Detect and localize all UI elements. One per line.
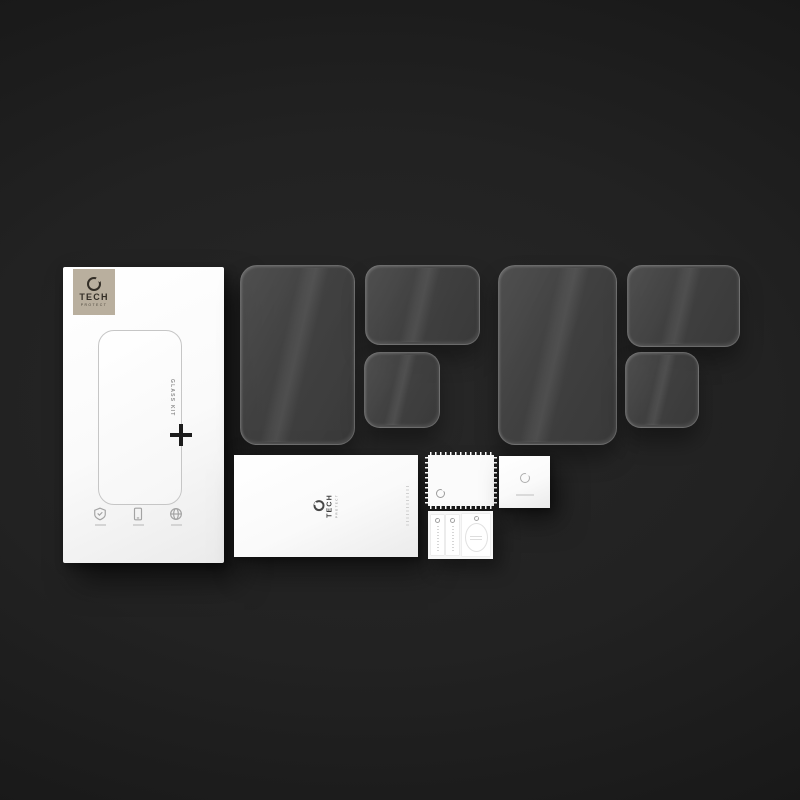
envelope-brand-logo: TECH PROTECT <box>314 494 339 518</box>
sticker-text-line <box>470 539 482 540</box>
brand-subname: PROTECT <box>81 304 108 308</box>
micro-label-bar <box>516 494 534 496</box>
smartphone-icon <box>131 507 145 521</box>
glass-panel-small-right <box>625 352 699 428</box>
broken-ring-logo-icon <box>87 277 101 291</box>
icon-label-bar <box>95 524 106 526</box>
product-photo-scene: TECH PROTECT GLASS KIT <box>0 0 800 800</box>
broken-ring-logo-icon <box>474 516 479 521</box>
globe-icon <box>169 507 183 521</box>
broken-ring-logo-icon <box>314 501 325 512</box>
wipe-and-sticker-kit <box>428 511 493 559</box>
sticker-oval <box>465 523 488 552</box>
dust-removal-sticker <box>462 514 490 556</box>
envelope-fine-print <box>406 486 409 528</box>
dry-wipe-strip <box>446 515 459 555</box>
glass-panel-large-left <box>240 265 355 445</box>
retail-box: TECH PROTECT GLASS KIT <box>63 267 224 563</box>
broken-ring-logo-icon <box>520 473 530 483</box>
microfiber-square <box>499 456 550 508</box>
phone-outline <box>98 330 182 505</box>
icon-label-bar <box>171 524 182 526</box>
alignment-cross-icon <box>170 424 192 446</box>
broken-ring-logo-icon <box>435 518 440 523</box>
strip-text-ticks <box>437 526 439 552</box>
cross-vertical-bar <box>179 424 183 446</box>
feature-icons-row <box>91 507 185 526</box>
brand-subname: PROTECT <box>336 494 339 518</box>
glass-kit-label: GLASS KIT <box>169 379 175 416</box>
wet-wipe-strip <box>431 515 444 555</box>
feature-globe <box>167 507 185 526</box>
icon-label-bar <box>133 524 144 526</box>
sticker-text-line <box>470 536 482 537</box>
shield-icon <box>93 507 107 521</box>
glass-panel-medium-left <box>365 265 480 345</box>
brand-name: TECH <box>327 494 334 518</box>
brand-badge: TECH PROTECT <box>73 269 115 315</box>
strip-text-ticks <box>452 526 454 552</box>
glass-panel-small-left <box>364 352 440 428</box>
serrated-edge <box>494 457 497 504</box>
wet-wipe-sachet <box>428 455 494 506</box>
glass-panel-medium-right <box>627 265 740 347</box>
brand-name: TECH <box>79 293 108 302</box>
serrated-edge <box>425 457 428 504</box>
instruction-envelope: TECH PROTECT <box>234 455 418 557</box>
feature-shield <box>91 507 109 526</box>
broken-ring-logo-icon <box>450 518 455 523</box>
broken-ring-logo-icon <box>436 489 445 498</box>
feature-smartphone <box>129 507 147 526</box>
glass-panel-large-right <box>498 265 617 445</box>
